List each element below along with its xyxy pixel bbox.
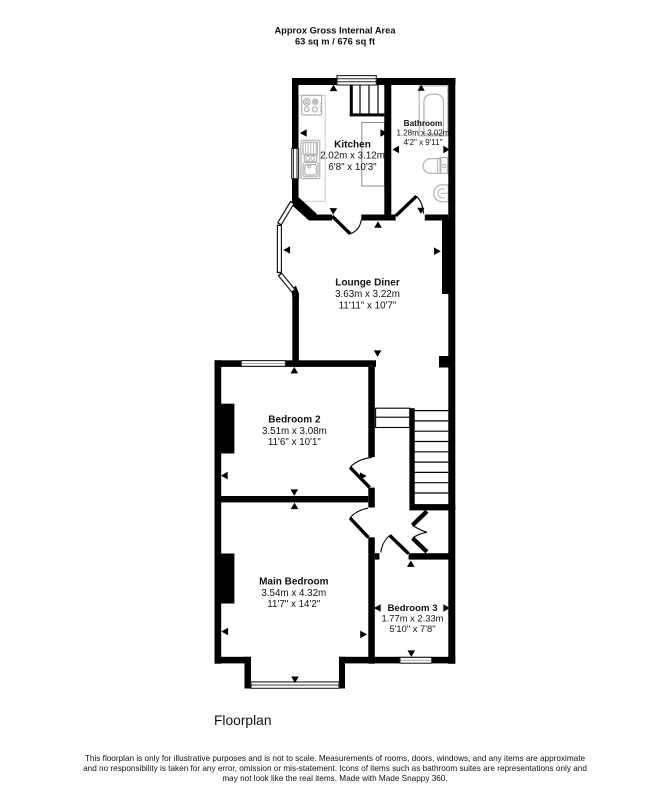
svg-text:Bathroom: Bathroom: [404, 119, 443, 128]
svg-text:Kitchen: Kitchen: [334, 139, 371, 150]
svg-text:3.63m x 3.22m: 3.63m x 3.22m: [335, 289, 400, 300]
svg-text:5'10" x 7'8": 5'10" x 7'8": [389, 623, 435, 634]
svg-text:This floorplan is only for ill: This floorplan is only for illustrative …: [85, 754, 586, 763]
svg-text:1.77m x 2.33m: 1.77m x 2.33m: [381, 612, 443, 623]
svg-text:and no responsibility is taken: and no responsibility is taken for any e…: [83, 764, 587, 773]
svg-text:may not look like the real ite: may not look like the real items. Made w…: [222, 774, 447, 783]
svg-text:4'2" x 9'11": 4'2" x 9'11": [404, 138, 443, 147]
svg-text:11'6" x 10'1": 11'6" x 10'1": [268, 437, 322, 448]
svg-text:2.02m x 3.12m: 2.02m x 3.12m: [320, 151, 385, 162]
svg-text:Main Bedroom: Main Bedroom: [259, 577, 329, 588]
svg-text:11'11" x 10'7": 11'11" x 10'7": [339, 300, 397, 311]
svg-text:63 sq m / 676 sq ft: 63 sq m / 676 sq ft: [295, 36, 375, 46]
svg-text:6'8" x 10'3": 6'8" x 10'3": [328, 162, 377, 173]
svg-text:1.28m x 3.02m: 1.28m x 3.02m: [397, 129, 450, 138]
svg-text:Floorplan: Floorplan: [214, 713, 272, 728]
svg-text:11'7" x 14'2": 11'7" x 14'2": [267, 599, 321, 610]
svg-text:Bedroom 2: Bedroom 2: [268, 415, 321, 426]
svg-text:Approx Gross Internal Area: Approx Gross Internal Area: [274, 25, 396, 35]
svg-text:3.54m x 4.32m: 3.54m x 4.32m: [261, 588, 326, 599]
svg-text:3.51m x 3.08m: 3.51m x 3.08m: [262, 426, 327, 437]
svg-text:Lounge Diner: Lounge Diner: [335, 278, 400, 289]
